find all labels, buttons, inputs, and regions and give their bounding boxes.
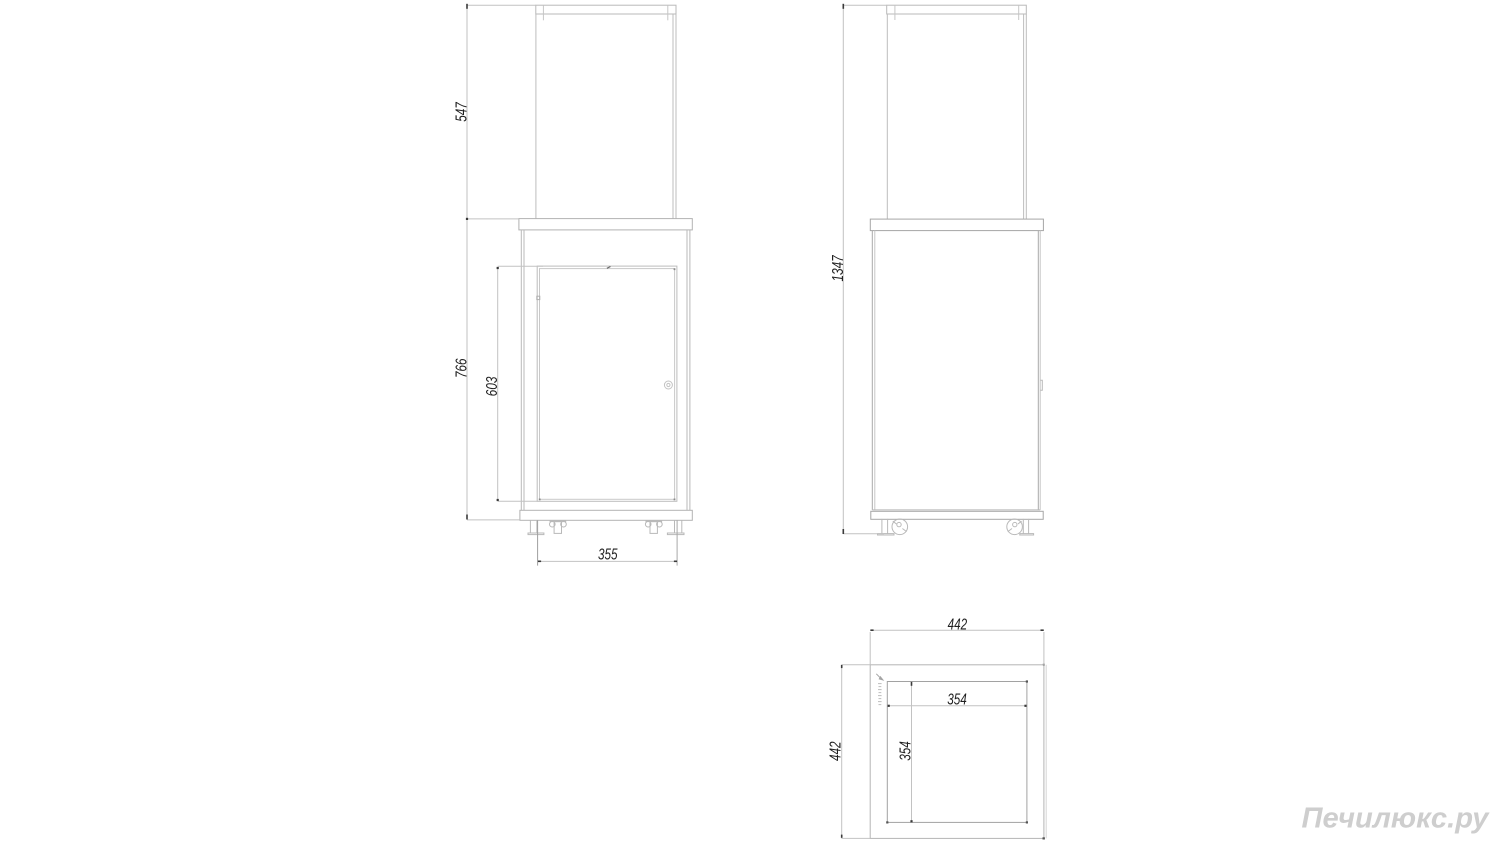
svg-text:354: 354 <box>898 741 915 761</box>
svg-text:442: 442 <box>948 617 968 634</box>
svg-text:442: 442 <box>828 741 845 761</box>
svg-text:354: 354 <box>947 691 967 708</box>
svg-text:1347: 1347 <box>830 254 847 281</box>
svg-text:603: 603 <box>484 376 501 396</box>
svg-text:355: 355 <box>598 547 618 564</box>
svg-text:Печилюкс.ру: Печилюкс.ру <box>1302 803 1491 835</box>
svg-text:547: 547 <box>453 101 470 122</box>
svg-text:766: 766 <box>453 358 470 378</box>
